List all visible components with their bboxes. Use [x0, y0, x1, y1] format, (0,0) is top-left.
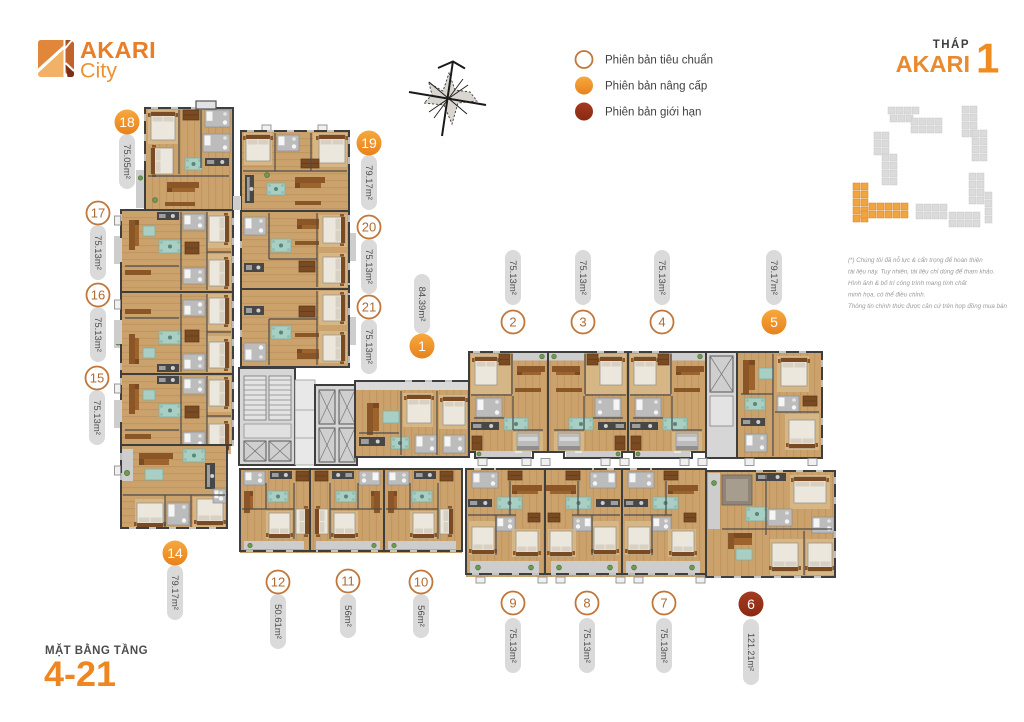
svg-text:79.17m²: 79.17m²	[363, 165, 374, 200]
svg-text:1: 1	[976, 35, 999, 82]
svg-text:3: 3	[579, 315, 586, 330]
svg-text:75.13m²: 75.13m²	[363, 329, 374, 364]
svg-text:11: 11	[341, 574, 355, 589]
svg-text:75.05m²: 75.05m²	[121, 144, 132, 179]
svg-text:14: 14	[167, 545, 183, 561]
svg-text:THÁP: THÁP	[933, 38, 970, 51]
svg-text:75.13m²: 75.13m²	[577, 260, 588, 295]
svg-text:1: 1	[418, 338, 426, 354]
svg-text:(*) Chúng tôi đã nỗ lực & cẩn: (*) Chúng tôi đã nỗ lực & cẩn trọng để h…	[848, 257, 983, 264]
svg-text:Hình ảnh & bố trí công trình m: Hình ảnh & bố trí công trình mang tính c…	[848, 280, 967, 287]
svg-text:minh họa, có thể điều chỉnh.: minh họa, có thể điều chỉnh.	[848, 292, 925, 299]
svg-text:75.13m²: 75.13m²	[92, 235, 103, 270]
svg-text:Phiên bản tiêu chuẩn: Phiên bản tiêu chuẩn	[605, 55, 713, 67]
svg-text:16: 16	[91, 288, 105, 303]
svg-text:56m²: 56m²	[415, 605, 426, 627]
svg-text:20: 20	[362, 220, 376, 235]
svg-text:12: 12	[271, 575, 285, 590]
svg-text:75.13m²: 75.13m²	[658, 628, 669, 663]
svg-text:AKARI: AKARI	[896, 51, 970, 77]
svg-text:7: 7	[660, 596, 667, 611]
svg-text:Thông tin chính thức được căn: Thông tin chính thức được căn cứ trên hợ…	[848, 303, 1007, 310]
svg-text:75.13m²: 75.13m²	[507, 628, 518, 663]
svg-text:10: 10	[414, 575, 428, 590]
svg-text:75.13m²: 75.13m²	[507, 260, 518, 295]
svg-text:79.17m²: 79.17m²	[169, 575, 180, 610]
svg-text:18: 18	[119, 114, 135, 130]
svg-text:City: City	[80, 59, 117, 83]
svg-text:79.17m²: 79.17m²	[768, 260, 779, 295]
svg-text:50.61m²: 50.61m²	[272, 604, 283, 639]
svg-text:15: 15	[90, 371, 104, 386]
svg-text:Phiên bản nâng cấp: Phiên bản nâng cấp	[605, 81, 707, 93]
svg-text:2: 2	[509, 315, 516, 330]
svg-text:19: 19	[361, 135, 377, 151]
svg-text:75.13m²: 75.13m²	[91, 400, 102, 435]
svg-text:75.13m²: 75.13m²	[363, 249, 374, 284]
svg-text:75.13m²: 75.13m²	[581, 628, 592, 663]
svg-text:4-21: 4-21	[44, 655, 116, 694]
svg-text:9: 9	[509, 596, 516, 611]
svg-text:121.21m²: 121.21m²	[746, 633, 756, 671]
svg-text:84.39m²: 84.39m²	[416, 287, 427, 322]
svg-text:Phiên bản giới hạn: Phiên bản giới hạn	[605, 107, 701, 119]
svg-text:6: 6	[747, 596, 755, 612]
svg-text:tài liệu này. Tuy nhiên, tài l: tài liệu này. Tuy nhiên, tài liệu chỉ dù…	[848, 269, 995, 276]
svg-text:56m²: 56m²	[342, 605, 353, 627]
svg-text:75.13m²: 75.13m²	[656, 260, 667, 295]
svg-text:8: 8	[583, 596, 590, 611]
svg-text:75.13m²: 75.13m²	[92, 317, 103, 352]
svg-text:4: 4	[658, 315, 665, 330]
svg-text:5: 5	[770, 314, 778, 330]
svg-text:17: 17	[91, 206, 105, 221]
svg-text:21: 21	[362, 300, 376, 315]
